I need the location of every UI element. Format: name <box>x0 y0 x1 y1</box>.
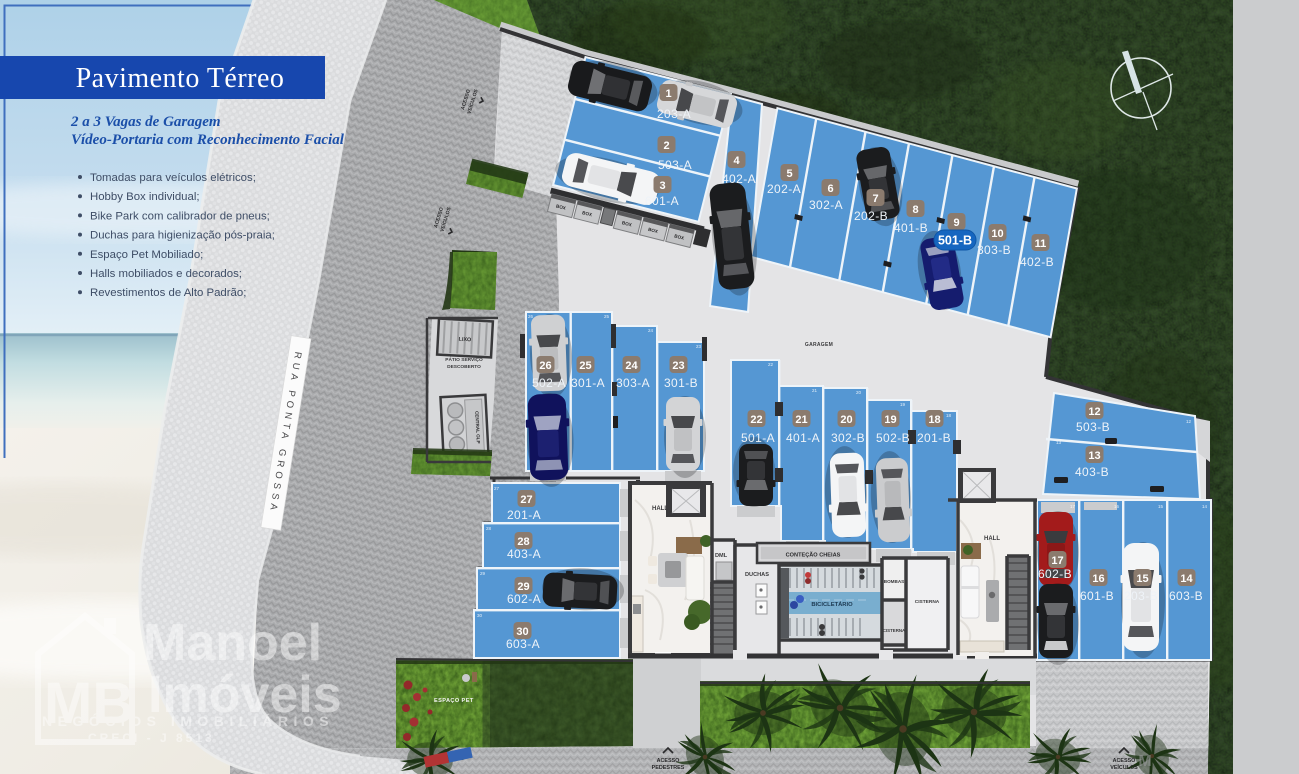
svg-text:20: 20 <box>840 414 852 426</box>
svg-text:301-A: 301-A <box>571 376 605 390</box>
svg-text:24: 24 <box>625 360 638 372</box>
svg-text:601-B: 601-B <box>1080 589 1114 603</box>
svg-text:CISTERNA: CISTERNA <box>915 599 940 605</box>
svg-text:19: 19 <box>884 414 896 426</box>
svg-text:DESCOBERTO: DESCOBERTO <box>447 364 481 370</box>
svg-text:Duchas para higienização pós-p: Duchas para higienização pós-praia; <box>90 230 275 242</box>
svg-text:2: 2 <box>663 140 669 152</box>
svg-text:Hobby Box individual;: Hobby Box individual; <box>90 191 200 203</box>
svg-text:402-A: 402-A <box>722 172 756 186</box>
svg-text:503-B: 503-B <box>1076 420 1110 434</box>
svg-text:26: 26 <box>528 314 534 319</box>
svg-text:DML: DML <box>715 553 728 559</box>
svg-text:8: 8 <box>912 204 918 216</box>
svg-text:30: 30 <box>477 613 483 618</box>
svg-text:HALL: HALL <box>652 506 668 512</box>
svg-text:11: 11 <box>1035 238 1047 250</box>
svg-text:24: 24 <box>648 328 654 333</box>
svg-text:16: 16 <box>1114 504 1120 509</box>
svg-text:401-A: 401-A <box>786 431 820 445</box>
svg-text:12: 12 <box>1186 419 1192 424</box>
svg-text:602-B: 602-B <box>1038 567 1072 581</box>
svg-text:CISTERNA: CISTERNA <box>883 628 906 633</box>
svg-text:Tomadas para veículos elétrico: Tomadas para veículos elétricos; <box>90 172 256 184</box>
svg-text:25: 25 <box>604 314 610 319</box>
svg-text:28: 28 <box>486 526 492 531</box>
svg-text:4: 4 <box>733 155 740 167</box>
svg-text:29: 29 <box>480 571 486 576</box>
svg-text:PEDESTRES: PEDESTRES <box>652 765 685 771</box>
svg-text:7: 7 <box>872 193 878 205</box>
svg-text:403-A: 403-A <box>507 547 541 561</box>
svg-text:12: 12 <box>1088 406 1100 418</box>
svg-text:303-A: 303-A <box>616 376 650 390</box>
svg-text:501-B: 501-B <box>938 234 972 248</box>
svg-text:25: 25 <box>579 360 591 372</box>
svg-text:Manoel: Manoel <box>143 614 322 672</box>
svg-text:PÁTIO SERVIÇO: PÁTIO SERVIÇO <box>445 356 483 363</box>
svg-text:23: 23 <box>696 344 702 349</box>
svg-text:13: 13 <box>1056 440 1062 445</box>
svg-text:LIXO: LIXO <box>458 337 471 344</box>
svg-text:VEÍCULOS: VEÍCULOS <box>1110 763 1138 771</box>
svg-text:22: 22 <box>750 414 762 426</box>
svg-text:27: 27 <box>520 494 532 506</box>
svg-text:2 a 3 Vagas de Garagem: 2 a 3 Vagas de Garagem <box>70 114 221 130</box>
svg-text:9: 9 <box>953 217 959 229</box>
svg-text:402-B: 402-B <box>1020 255 1054 269</box>
svg-text:22: 22 <box>768 362 774 367</box>
svg-text:14: 14 <box>1180 573 1193 585</box>
svg-text:Pavimento Térreo: Pavimento Térreo <box>76 63 285 94</box>
svg-text:203-B: 203-B <box>1124 589 1158 603</box>
svg-text:ACESSO: ACESSO <box>1113 758 1136 764</box>
svg-text:DUCHAS: DUCHAS <box>745 572 769 578</box>
svg-text:13: 13 <box>1088 450 1100 462</box>
svg-text:403-B: 403-B <box>1075 465 1109 479</box>
svg-text:303-B: 303-B <box>977 243 1011 257</box>
svg-text:5: 5 <box>786 168 792 180</box>
svg-text:23: 23 <box>672 360 684 372</box>
svg-text:302-B: 302-B <box>831 431 865 445</box>
svg-text:502-B: 502-B <box>876 431 910 445</box>
svg-text:601-A: 601-A <box>645 194 679 208</box>
svg-text:17: 17 <box>1051 555 1063 567</box>
svg-text:202-B: 202-B <box>854 209 888 223</box>
svg-text:202-A: 202-A <box>767 182 801 196</box>
svg-text:15: 15 <box>1136 573 1148 585</box>
svg-text:203-A: 203-A <box>657 107 691 121</box>
svg-text:3: 3 <box>659 180 665 192</box>
svg-text:Vídeo-Portaria com Reconhecime: Vídeo-Portaria com Reconhecimento Facial <box>71 132 345 148</box>
svg-text:Espaço Pet Mobiliado;: Espaço Pet Mobiliado; <box>90 249 203 261</box>
svg-text:501-A: 501-A <box>741 431 775 445</box>
svg-text:18: 18 <box>946 413 952 418</box>
svg-text:M: M <box>1138 753 1151 770</box>
svg-text:ACESSO: ACESSO <box>657 758 680 764</box>
svg-text:GARAGEM: GARAGEM <box>805 342 833 348</box>
svg-text:15: 15 <box>1158 504 1164 509</box>
svg-text:602-A: 602-A <box>507 592 541 606</box>
svg-text:Halls mobiliados e decorados;: Halls mobiliados e decorados; <box>90 268 242 280</box>
svg-text:603-A: 603-A <box>506 637 540 651</box>
svg-text:401-B: 401-B <box>894 221 928 235</box>
svg-text:1: 1 <box>665 88 671 100</box>
svg-text:16: 16 <box>1092 573 1104 585</box>
svg-text:26: 26 <box>539 360 551 372</box>
svg-text:603-B: 603-B <box>1169 589 1203 603</box>
svg-text:6: 6 <box>827 183 833 195</box>
svg-text:201-B: 201-B <box>917 431 951 445</box>
svg-text:BOMBAS: BOMBAS <box>884 579 904 584</box>
svg-text:19: 19 <box>900 402 906 407</box>
svg-text:21: 21 <box>812 388 818 393</box>
svg-text:HALL: HALL <box>984 536 1000 542</box>
svg-text:302-A: 302-A <box>809 198 843 212</box>
svg-text:201-A: 201-A <box>507 508 541 522</box>
svg-text:Revestimentos de Alto Padrão;: Revestimentos de Alto Padrão; <box>90 287 246 299</box>
svg-text:10: 10 <box>991 228 1003 240</box>
svg-text:BICICLETÁRIO: BICICLETÁRIO <box>811 601 853 608</box>
svg-text:27: 27 <box>494 486 500 491</box>
svg-text:20: 20 <box>856 390 862 395</box>
svg-text:503-A: 503-A <box>658 158 692 172</box>
svg-text:CRECI - J 8513: CRECI - J 8513 <box>88 731 215 745</box>
svg-text:ESPAÇO PET: ESPAÇO PET <box>434 698 474 704</box>
svg-text:Bike Park com calibrador de pn: Bike Park com calibrador de pneus; <box>90 210 270 222</box>
svg-text:502-A: 502-A <box>532 376 566 390</box>
svg-text:NEGÓCIOS IMOBILIÁRIOS: NEGÓCIOS IMOBILIÁRIOS <box>42 712 334 729</box>
svg-text:18: 18 <box>928 414 940 426</box>
svg-text:21: 21 <box>795 414 807 426</box>
svg-text:CONTEÇÃO CHEIAS: CONTEÇÃO CHEIAS <box>786 552 841 559</box>
svg-text:17: 17 <box>1070 504 1076 509</box>
svg-text:14: 14 <box>1202 504 1208 509</box>
svg-text:301-B: 301-B <box>664 376 698 390</box>
